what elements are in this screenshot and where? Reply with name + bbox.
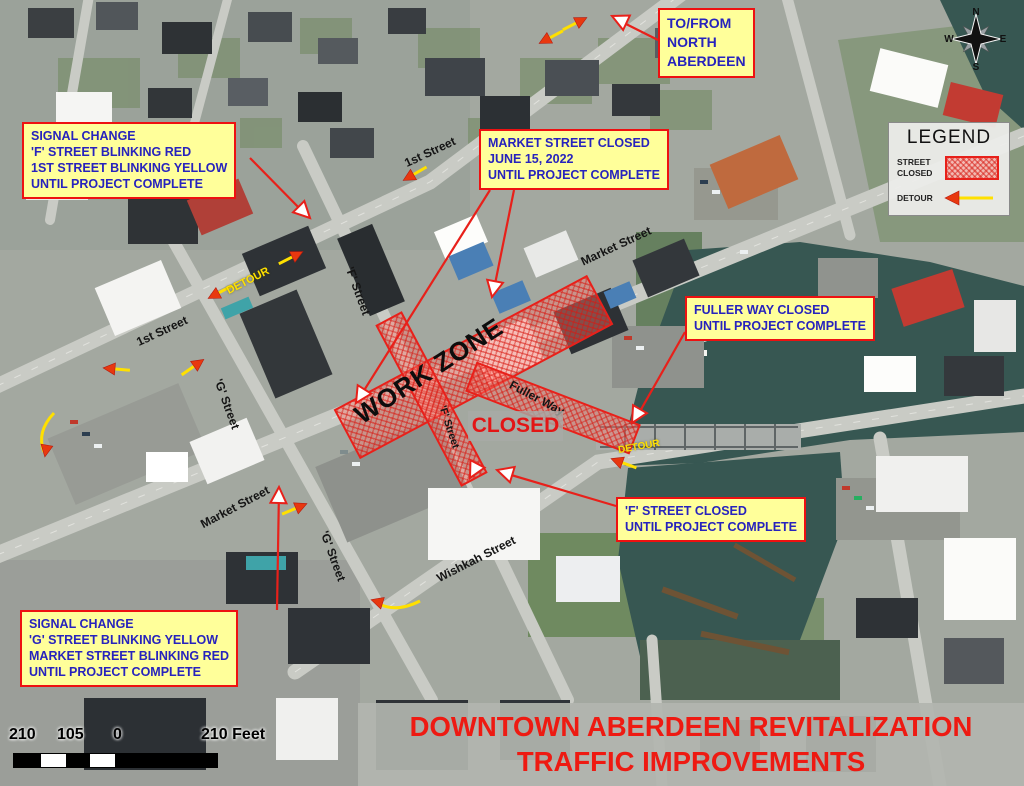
callout-line: UNTIL PROJECT COMPLETE bbox=[29, 664, 229, 680]
callout-line: 'F' STREET BLINKING RED bbox=[31, 144, 227, 160]
compass-rose: N E S W bbox=[944, 6, 1008, 70]
compass-east-label: E bbox=[1000, 34, 1007, 45]
callout-line: NORTH bbox=[667, 33, 746, 52]
callout-line: UNTIL PROJECT COMPLETE bbox=[694, 318, 866, 334]
callout-line: 1ST STREET BLINKING YELLOW bbox=[31, 160, 227, 176]
callout-line: FULLER WAY CLOSED bbox=[694, 302, 866, 318]
map-title-line1: DOWNTOWN ABERDEEN REVITALIZATION bbox=[410, 710, 973, 744]
legend-street-closed-swatch bbox=[945, 156, 999, 180]
compass-west-label: W bbox=[944, 34, 954, 45]
callout-line: JUNE 15, 2022 bbox=[488, 151, 660, 167]
callout-line: MARKET STREET BLINKING RED bbox=[29, 648, 229, 664]
scale-label-0: 0 bbox=[113, 726, 122, 744]
callout-market-street-closed: MARKET STREET CLOSED JUNE 15, 2022 UNTIL… bbox=[479, 129, 669, 190]
legend-title: LEGEND bbox=[889, 127, 1009, 149]
callout-line: UNTIL PROJECT COMPLETE bbox=[625, 519, 797, 535]
scale-label-210-left: 210 bbox=[9, 726, 36, 744]
scale-bar: 210 105 0 210 Feet bbox=[5, 726, 305, 774]
legend: LEGEND STREET CLOSED DETOUR bbox=[888, 122, 1010, 216]
callout-f-street-closed: 'F' STREET CLOSED UNTIL PROJECT COMPLETE bbox=[616, 497, 806, 542]
scale-label-105: 105 bbox=[57, 726, 84, 744]
callout-line: TO/FROM bbox=[667, 14, 746, 33]
legend-detour-label: DETOUR bbox=[897, 193, 943, 204]
callout-line: ABERDEEN bbox=[667, 52, 746, 71]
legend-street-closed-label: STREET CLOSED bbox=[897, 157, 943, 178]
closed-text: CLOSED bbox=[468, 411, 563, 441]
callout-line: 'G' STREET BLINKING YELLOW bbox=[29, 632, 229, 648]
callout-fuller-way-closed: FULLER WAY CLOSED UNTIL PROJECT COMPLETE bbox=[685, 296, 875, 341]
callout-signal-change-north: SIGNAL CHANGE 'F' STREET BLINKING RED 1S… bbox=[22, 122, 236, 199]
map-title-line2: TRAFFIC IMPROVEMENTS bbox=[517, 745, 865, 779]
callout-line: UNTIL PROJECT COMPLETE bbox=[31, 176, 227, 192]
callout-signal-change-south: SIGNAL CHANGE 'G' STREET BLINKING YELLOW… bbox=[20, 610, 238, 687]
callout-line: 'F' STREET CLOSED bbox=[625, 503, 797, 519]
legend-detour-arrow bbox=[943, 190, 995, 206]
aberdeen-traffic-map: 1st Street 1st Street Market Street Mark… bbox=[0, 0, 1024, 786]
callout-line: UNTIL PROJECT COMPLETE bbox=[488, 167, 660, 183]
compass-north-label: N bbox=[972, 7, 979, 18]
scale-label-210-feet: 210 Feet bbox=[201, 726, 265, 744]
compass-south-label: S bbox=[973, 62, 980, 70]
callout-line: MARKET STREET CLOSED bbox=[488, 135, 660, 151]
callout-line: SIGNAL CHANGE bbox=[29, 616, 229, 632]
scale-bar-segments bbox=[13, 753, 218, 768]
map-title: DOWNTOWN ABERDEEN REVITALIZATION TRAFFIC… bbox=[358, 703, 1024, 786]
callout-line: SIGNAL CHANGE bbox=[31, 128, 227, 144]
callout-to-from-north-aberdeen: TO/FROM NORTH ABERDEEN bbox=[658, 8, 755, 78]
